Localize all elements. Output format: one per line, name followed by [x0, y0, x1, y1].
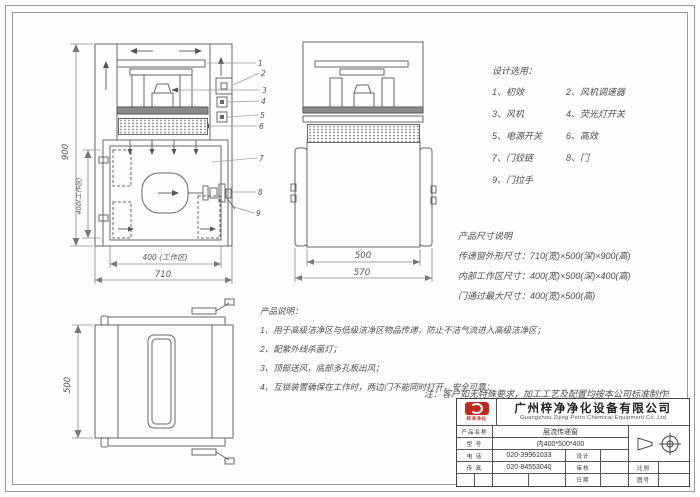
phone2-label: 传 真	[457, 462, 493, 474]
design-item: 4、荧光灯开关	[566, 107, 625, 129]
phone2-value: 020-84553040	[493, 462, 566, 474]
dim-front-inner-width: 400 (工作区)	[142, 253, 187, 262]
design-item: 1、初效	[492, 85, 566, 107]
dim-front-height: 900	[61, 144, 71, 160]
drawing-sheet: 900 400(工作区) 400 (工作区) 710	[0, 0, 700, 497]
svg-text:9: 9	[256, 209, 261, 218]
projection-symbols-icon	[632, 429, 686, 459]
size-note-line: 门通过最大尺寸：400(宽)×500(高)	[458, 289, 631, 302]
svg-text:8: 8	[258, 188, 263, 197]
size-note-line: 内部工作区尺寸：400(宽)×500(深)×400(高)	[458, 269, 631, 282]
model-label: 型 号	[457, 438, 493, 450]
design-selection-list: 设计选用： 1、初效 2、风机调速器 3、风机 4、荧光灯开关 5、电源开关 6…	[492, 64, 625, 195]
product-notes: 产品说明： 1、用于高级洁净区与低级洁净区物品传递，防止不洁气流进入高级洁净区；…	[260, 305, 545, 393]
design-value-empty	[601, 450, 629, 462]
hepa-filter-front	[118, 118, 208, 135]
check-value-empty	[601, 462, 629, 474]
spare-cell	[529, 474, 566, 486]
phone1-value: 020-39961033	[493, 450, 566, 462]
svg-text:2: 2	[261, 69, 266, 78]
side-view: 500 570	[291, 42, 436, 282]
company-name-en: Guangzhou Zijing Petro Chemical Equipmen…	[520, 415, 666, 422]
svg-text:7: 7	[259, 154, 264, 163]
side-door-left	[295, 148, 307, 246]
design-item: 9、门拉手	[492, 173, 566, 195]
company-name-cn: 广州梓净净化设备有限公司	[514, 403, 671, 415]
product-note-line: 2、配紫外线杀菌灯；	[260, 343, 545, 355]
fan-base-plate	[117, 107, 208, 114]
company-logo: 梓净净化	[457, 399, 497, 426]
product-name-label: 产品名称	[457, 426, 493, 438]
projection-symbol-cell	[629, 426, 689, 462]
design-item: 7、门铰链	[492, 151, 566, 173]
design-item: 8、门	[566, 151, 625, 173]
svg-text:4: 4	[261, 97, 266, 106]
design-list-title: 设计选用：	[492, 64, 625, 77]
dim-side-outer: 570	[354, 268, 370, 278]
design-item: 6、高效	[566, 129, 625, 151]
spare-cell	[475, 474, 493, 486]
title-block: 梓净净化 广州梓净净化设备有限公司 Guangzhou Zijing Petro…	[456, 398, 690, 487]
dim-side-inner: 500	[355, 251, 371, 261]
design-item: 2、风机调速器	[566, 85, 625, 107]
bottom-dimensions	[72, 325, 93, 438]
design-item: 5、电源开关	[492, 129, 566, 151]
front-view: 900 400(工作区) 400 (工作区) 710	[61, 44, 267, 284]
drawing-no-label: 图号	[629, 474, 659, 486]
drawing-no-value-empty	[659, 474, 689, 486]
svg-text:3: 3	[262, 86, 267, 95]
latch-mechanism	[192, 299, 234, 464]
side-door-right	[420, 148, 432, 246]
svg-text:6: 6	[259, 122, 264, 131]
size-notes-title: 产品尺寸说明	[458, 229, 631, 242]
model-value: 内400*500*400	[493, 438, 629, 450]
design-item: 3、风机	[492, 107, 566, 129]
design-label: 设计	[566, 450, 601, 462]
product-name-value: 层流传递窗	[493, 426, 629, 438]
date-value-empty	[601, 474, 629, 486]
svg-text:1: 1	[258, 59, 263, 68]
scale-label: 比例	[629, 462, 659, 474]
product-notes-title: 产品说明：	[260, 305, 545, 317]
logo-caption: 梓净净化	[467, 416, 487, 422]
bottom-view: 500	[63, 299, 234, 464]
product-note-line: 1、用于高级洁净区与低级洁净区物品传递，防止不洁气流进入高级洁净区；	[260, 324, 545, 336]
date-label: 日期	[566, 474, 601, 486]
spare-cell	[457, 474, 475, 486]
logo-icon	[465, 402, 489, 415]
dim-front-inner-height: 400(工作区)	[75, 178, 83, 215]
dim-bottom-depth: 500	[63, 377, 73, 393]
check-label: 审核	[566, 462, 601, 474]
callout-numbers: 1 2 3 4 5 6 7 8 9	[256, 59, 267, 218]
spare-cell	[493, 474, 529, 486]
size-notes: 产品尺寸说明 传递窗外形尺寸：710(宽)×500(深)×900(高) 内部工作…	[458, 229, 631, 302]
phone1-label: 电 话	[457, 450, 493, 462]
size-note-line: 传递窗外形尺寸：710(宽)×500(深)×900(高)	[458, 249, 631, 262]
dim-front-width: 710	[155, 270, 171, 280]
scale-value-empty	[659, 462, 689, 474]
hepa-filter-side	[307, 124, 420, 143]
product-note-line: 3、顶部送风，底部多孔板出风；	[260, 362, 545, 374]
company-name-cell: 广州梓净净化设备有限公司 Guangzhou Zijing Petro Chem…	[497, 399, 689, 426]
svg-text:5: 5	[260, 111, 265, 120]
front-dimensions	[70, 44, 232, 284]
